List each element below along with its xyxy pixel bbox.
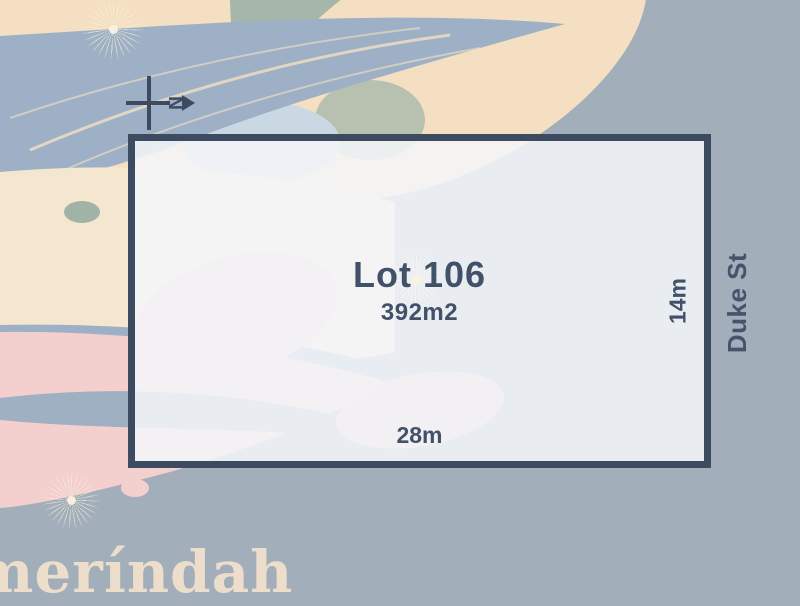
street-name-label: Duke St — [722, 243, 752, 363]
lot-number-label: Lot 106 — [353, 255, 486, 295]
lot-boundary: Lot 106 392m2 28m 14m — [128, 134, 711, 468]
starburst-top-left — [81, 0, 145, 61]
lot-frontage-dimension: 28m — [135, 422, 704, 449]
lot-label-block: Lot 106 392m2 — [353, 255, 486, 327]
lot-area-label: 392m2 — [353, 299, 486, 327]
starburst-bottom-left — [41, 470, 101, 530]
lot-diagram-canvas: { "canvas": { "background_color": "#a3ae… — [0, 0, 800, 600]
estate-watermark: meríndah — [0, 538, 293, 606]
compass-arrow-icon — [182, 95, 195, 111]
compass-north-letter: N — [164, 93, 184, 113]
north-arrow: N — [120, 70, 210, 136]
lot-depth-dimension: 14m — [665, 269, 692, 333]
sage-blob-small — [64, 201, 100, 223]
pink-speckle-2 — [121, 479, 149, 497]
